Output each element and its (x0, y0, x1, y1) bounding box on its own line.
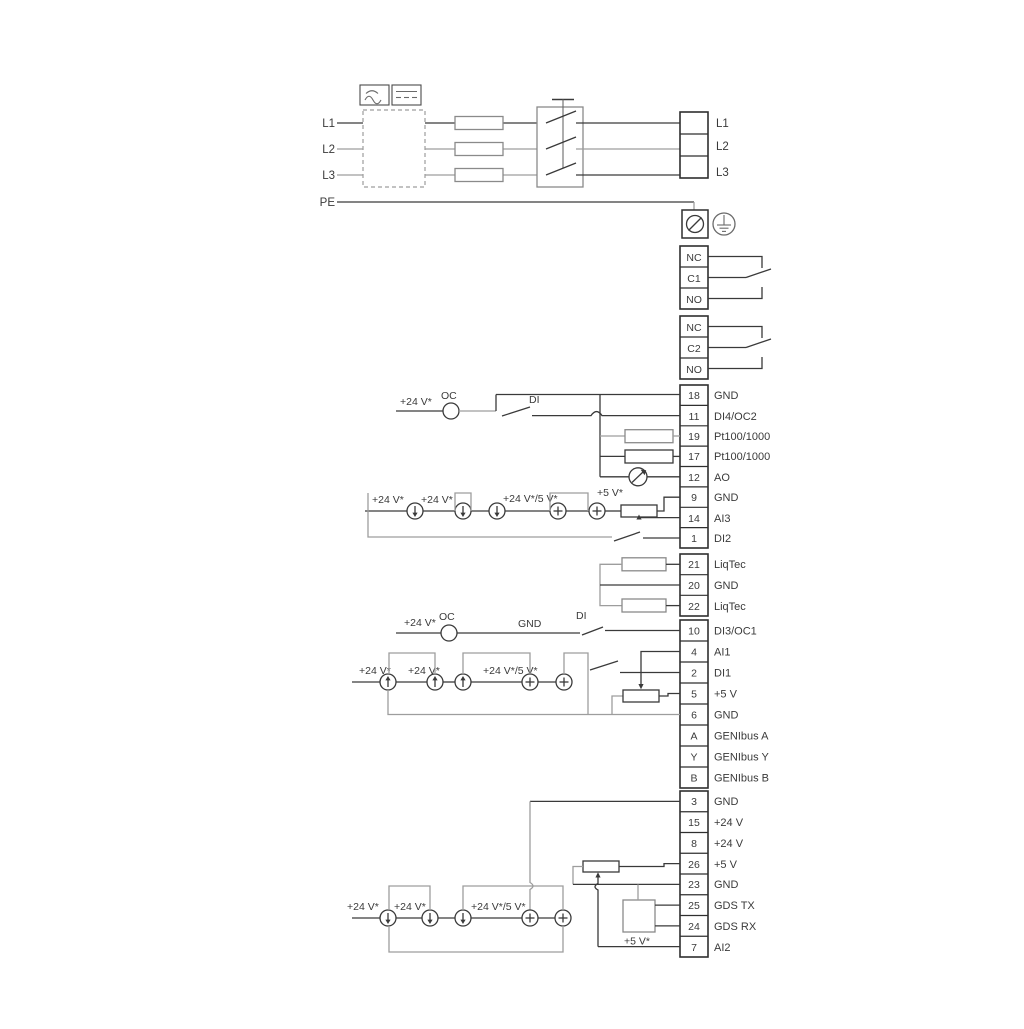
open-collector-icon (443, 403, 459, 419)
relay2-nc: NC (686, 322, 702, 334)
terminal-label: Pt100/1000 (714, 431, 770, 443)
relay2-c2: C2 (687, 343, 701, 355)
potentiometer (623, 690, 659, 702)
power-input-label-l3: L3 (322, 170, 335, 182)
terminal-number: 21 (688, 559, 700, 571)
terminal-label: GDS TX (714, 900, 755, 912)
terminal-label: GND (714, 390, 739, 402)
oc-label: OC (439, 611, 455, 623)
terminal-number: B (690, 773, 697, 785)
terminal-number: 25 (688, 900, 700, 912)
current-source-icon (489, 503, 505, 519)
dc-symbol-icon (392, 85, 421, 105)
wiring-diagram-page: L1 L2 L3 PE (0, 0, 1024, 1024)
terminal-label: Pt100/1000 (714, 451, 770, 463)
liqtec-strip: 21 LiqTec 20 GND 22 LiqTec (680, 554, 746, 616)
di-switch-contact (582, 627, 603, 635)
voltage-source-icon (522, 674, 538, 690)
terminal-number: 11 (689, 411, 700, 423)
pump-wiring-diagram: L1 L2 L3 PE (0, 0, 1024, 1024)
relay2-block: NC C2 NO (680, 316, 771, 379)
relay1-changeover-contact (708, 257, 771, 299)
ac-wave-icon (360, 85, 389, 105)
di2-switch-contact (614, 532, 640, 541)
terminal-number: 20 (688, 580, 700, 592)
voltage-source-icon (556, 674, 572, 690)
terminal-label: GND (714, 710, 739, 722)
di-label: DI (576, 610, 587, 622)
liqtec-sensor-1 (622, 558, 666, 571)
fuse-l3 (455, 169, 503, 182)
fuse-l1 (455, 117, 503, 130)
terminal-label: AO (714, 472, 730, 484)
gds-ai2-circuit: +24 V* +24 V* +24 V*/5 V* +5 V* (347, 801, 680, 952)
terminal-number: 19 (688, 431, 700, 443)
gnd-label: GND (518, 618, 542, 630)
liqtec-sensor-2 (622, 599, 666, 612)
terminal-number: 9 (691, 492, 697, 504)
terminal-number: 1 (691, 533, 697, 545)
supply-label: +24 V* (372, 494, 404, 506)
relay2-changeover-contact (708, 327, 771, 369)
relay1-nc: NC (686, 252, 702, 264)
terminal-number: 8 (691, 838, 697, 850)
current-source-icon (380, 674, 396, 690)
terminal-label: DI4/OC2 (714, 411, 757, 423)
terminal-number: 26 (688, 859, 700, 871)
terminal-number: 4 (691, 647, 697, 659)
power-input-label-pe: PE (320, 197, 336, 209)
terminal-label: DI1 (714, 668, 731, 680)
supply-label: +24 V*/5 V* (471, 901, 526, 913)
terminal-label: AI3 (714, 513, 731, 525)
terminal-label: GND (714, 796, 739, 808)
terminal-label: AI2 (714, 942, 731, 954)
terminal-strip-a: 18 GND 11 DI4/OC2 19 Pt100/1000 17 Pt100… (680, 385, 770, 548)
terminal-number: 10 (688, 626, 700, 638)
voltage-source-icon (589, 503, 605, 519)
di1-switch-contact (590, 661, 618, 670)
wiper-arrow (595, 872, 600, 877)
di-switch-contact (502, 407, 530, 416)
power-terminal-label-l2: L2 (716, 141, 729, 153)
terminal-number: 2 (691, 668, 697, 680)
terminal-label: LiqTec (714, 601, 746, 613)
terminal-number: 3 (691, 796, 697, 808)
ai1-di1-circuit: +24 V* +24 V* +24 V*/5 V* (352, 652, 680, 715)
terminal-number: 5 (691, 689, 697, 701)
supply-label: +24 V* (347, 901, 379, 913)
terminal-label: +24 V (714, 817, 744, 829)
supply-label: +24 V* (394, 901, 426, 913)
supply-label: +24 V* (404, 617, 436, 629)
terminal-strip-b: 10 DI3/OC1 4 AI1 2 DI1 5 +5 V 6 GND A GE… (680, 620, 769, 788)
terminal-number: 12 (688, 472, 700, 484)
open-collector-icon (441, 625, 457, 641)
power-section: L1 L2 L3 PE (320, 85, 735, 238)
pt100-sensor-1 (625, 430, 673, 443)
terminal-number: Y (690, 752, 697, 764)
current-source-icon (422, 910, 438, 926)
terminal-strip-c: 3 GND 15 +24 V 8 +24 V 26 +5 V 23 GND 25… (680, 791, 757, 957)
relay1-c1: C1 (687, 273, 701, 285)
terminal-label: GENIbus Y (714, 752, 769, 764)
current-source-icon (407, 503, 423, 519)
voltage-source-icon (555, 910, 571, 926)
terminal-label: DI3/OC1 (714, 626, 757, 638)
di4-oc2-circuit: +24 V* OC DI (396, 390, 680, 486)
current-source-icon (455, 503, 471, 519)
disconnect-switch (537, 100, 583, 188)
terminal-number: 6 (691, 710, 697, 722)
terminal-number: 15 (688, 817, 700, 829)
di-label: DI (529, 394, 540, 406)
relay1-block: NC C1 NO (680, 246, 771, 309)
supply-label: +5 V* (597, 487, 623, 499)
power-terminal-label-l1: L1 (716, 118, 729, 130)
terminal-number: 22 (688, 601, 700, 613)
power-terminal-label-l3: L3 (716, 167, 729, 179)
ai3-di2-circuit: +24 V* +24 V* +24 V*/5 V* +5 V* (365, 487, 680, 541)
current-source-icon (455, 910, 471, 926)
fuse-l2 (455, 143, 503, 156)
gds-sensor-box (623, 900, 655, 932)
terminal-number: 24 (688, 921, 700, 933)
terminal-number: 17 (688, 451, 700, 463)
potentiometer (583, 861, 619, 872)
terminal-label: GND (714, 580, 739, 592)
liqtec-sensor-circuit (600, 558, 680, 612)
mains-terminal-block (680, 112, 708, 178)
terminal-label: GDS RX (714, 921, 757, 933)
terminal-label: +5 V (714, 689, 738, 701)
power-input-label-l2: L2 (322, 144, 335, 156)
terminal-label: GND (714, 492, 739, 504)
terminal-label: +5 V (714, 859, 738, 871)
terminal-label: +24 V (714, 838, 744, 850)
current-source-icon (380, 910, 396, 926)
relay1-no: NO (686, 294, 702, 306)
supply-label: +5 V* (624, 936, 650, 948)
terminal-label: GND (714, 879, 739, 891)
rcd-box (363, 110, 425, 187)
supply-label: +24 V* (421, 494, 453, 506)
terminal-label: GENIbus A (714, 731, 769, 743)
di3-oc1-circuit: +24 V* OC GND DI (396, 610, 680, 641)
terminal-label: GENIbus B (714, 773, 769, 785)
terminal-number: A (690, 731, 697, 743)
supply-label: +24 V* (400, 396, 432, 408)
relay2-no: NO (686, 364, 702, 376)
terminal-number: 23 (688, 879, 700, 891)
terminal-number: 7 (691, 942, 697, 954)
power-input-label-l1: L1 (322, 118, 335, 130)
pe-terminal-icon (682, 210, 708, 238)
voltage-source-icon (522, 910, 538, 926)
current-source-icon (427, 674, 443, 690)
current-source-icon (455, 674, 471, 690)
terminal-number: 18 (688, 390, 700, 402)
terminal-label: LiqTec (714, 559, 746, 571)
terminal-number: 14 (688, 513, 700, 525)
terminal-label: AI1 (714, 647, 731, 659)
oc-label: OC (441, 390, 457, 402)
pt100-sensor-2 (625, 450, 673, 463)
meter-icon (629, 468, 647, 486)
wiper-arrow (638, 684, 643, 689)
terminal-label: DI2 (714, 533, 731, 545)
earth-icon (713, 213, 735, 235)
voltage-source-icon (550, 503, 566, 519)
